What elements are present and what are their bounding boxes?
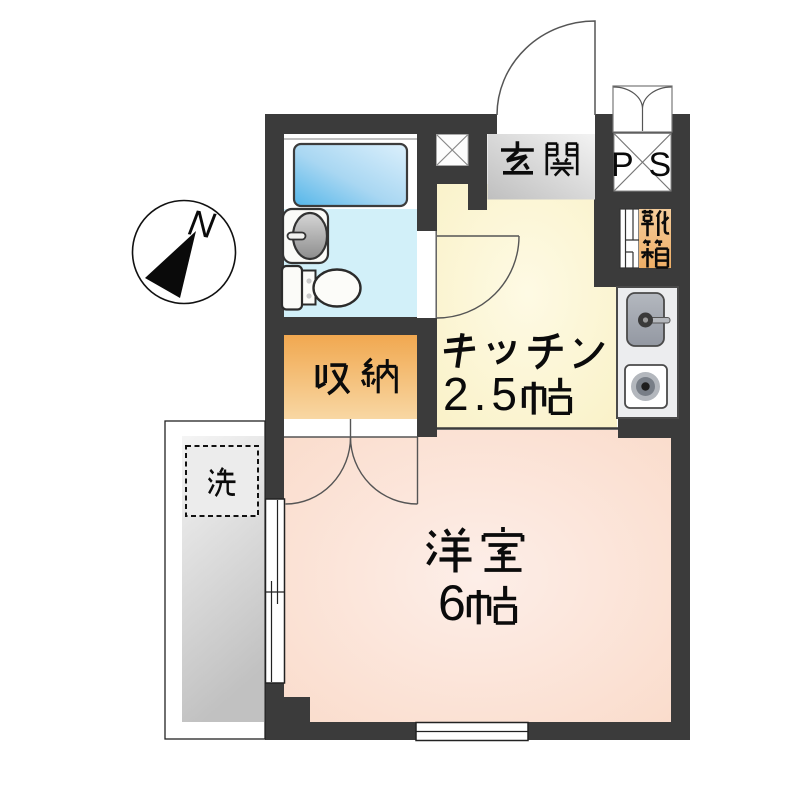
svg-text:P S: P S — [611, 146, 674, 184]
svg-text:6: 6 — [438, 575, 466, 631]
svg-text:2.5: 2.5 — [443, 368, 522, 420]
